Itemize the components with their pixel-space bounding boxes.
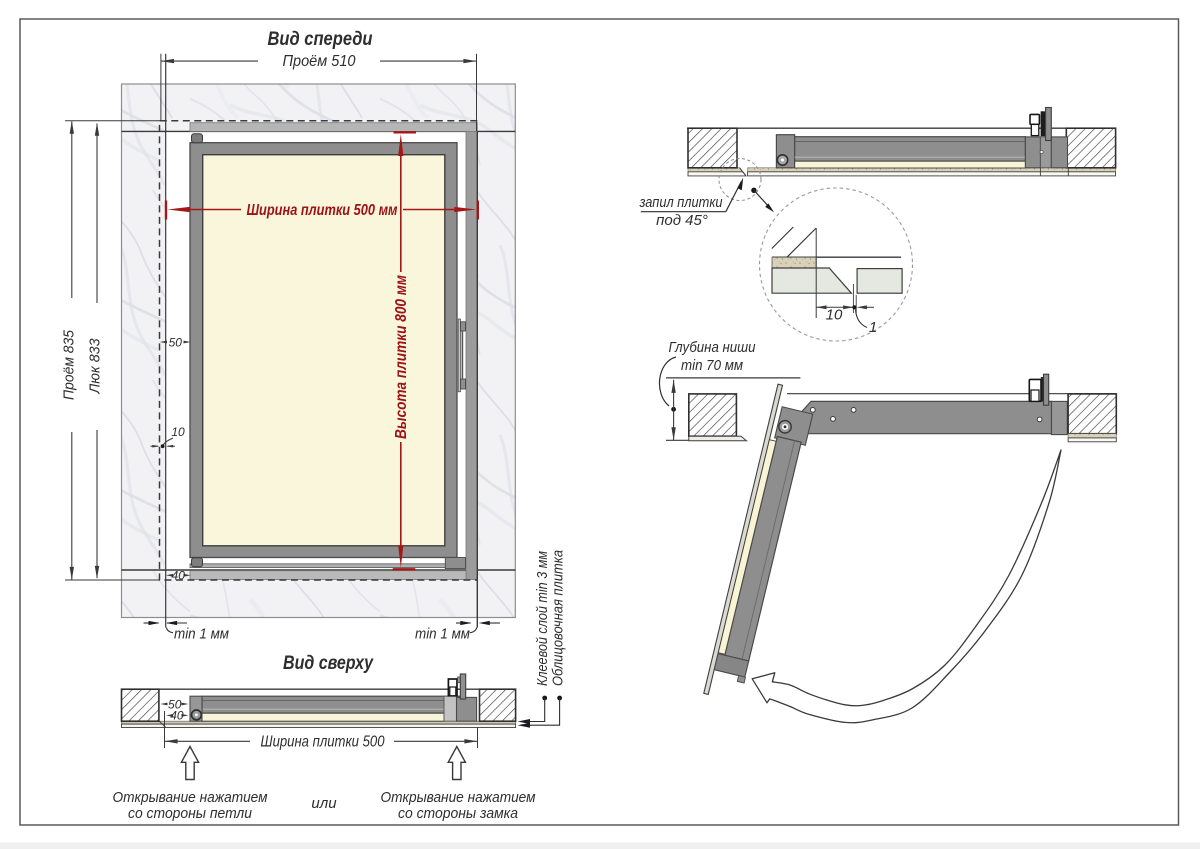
svg-text:min 70 мм: min 70 мм <box>681 357 743 374</box>
svg-text:Вид сверху: Вид сверху <box>283 653 374 674</box>
svg-text:Проём 835: Проём 835 <box>61 329 78 400</box>
svg-text:40: 40 <box>170 709 184 723</box>
svg-text:со стороны петли: со стороны петли <box>128 805 253 822</box>
svg-text:со стороны замка: со стороны замка <box>398 805 518 822</box>
svg-text:Проём 510: Проём 510 <box>283 53 356 70</box>
svg-text:Ширина плитки 500: Ширина плитки 500 <box>261 733 385 750</box>
svg-text:Глубина ниши: Глубина ниши <box>669 339 757 356</box>
svg-text:1: 1 <box>869 319 877 336</box>
svg-text:Открывание нажатием: Открывание нажатием <box>113 789 268 806</box>
svg-text:или: или <box>311 795 337 812</box>
svg-text:Клеевой слой min 3 мм: Клеевой слой min 3 мм <box>534 551 551 686</box>
svg-text:Ширина плитки 500 мм: Ширина плитки 500 мм <box>247 202 398 219</box>
svg-text:Высота плитки 800 мм: Высота плитки 800 мм <box>393 275 410 439</box>
svg-text:Люк 833: Люк 833 <box>86 338 103 395</box>
svg-text:Открывание нажатием: Открывание нажатием <box>381 789 536 806</box>
svg-text:Вид спереди: Вид спереди <box>268 29 373 50</box>
svg-text:40: 40 <box>172 569 186 583</box>
svg-text:под 45°: под 45° <box>656 212 708 229</box>
svg-text:min 1 мм: min 1 мм <box>415 626 470 643</box>
svg-text:Облицовочная плитка: Облицовочная плитка <box>550 550 567 686</box>
svg-text:10: 10 <box>826 307 843 324</box>
svg-text:запил плитки: запил плитки <box>639 194 723 211</box>
svg-text:min 1 мм: min 1 мм <box>174 626 229 643</box>
svg-text:10: 10 <box>171 425 185 439</box>
svg-text:50: 50 <box>169 335 183 349</box>
